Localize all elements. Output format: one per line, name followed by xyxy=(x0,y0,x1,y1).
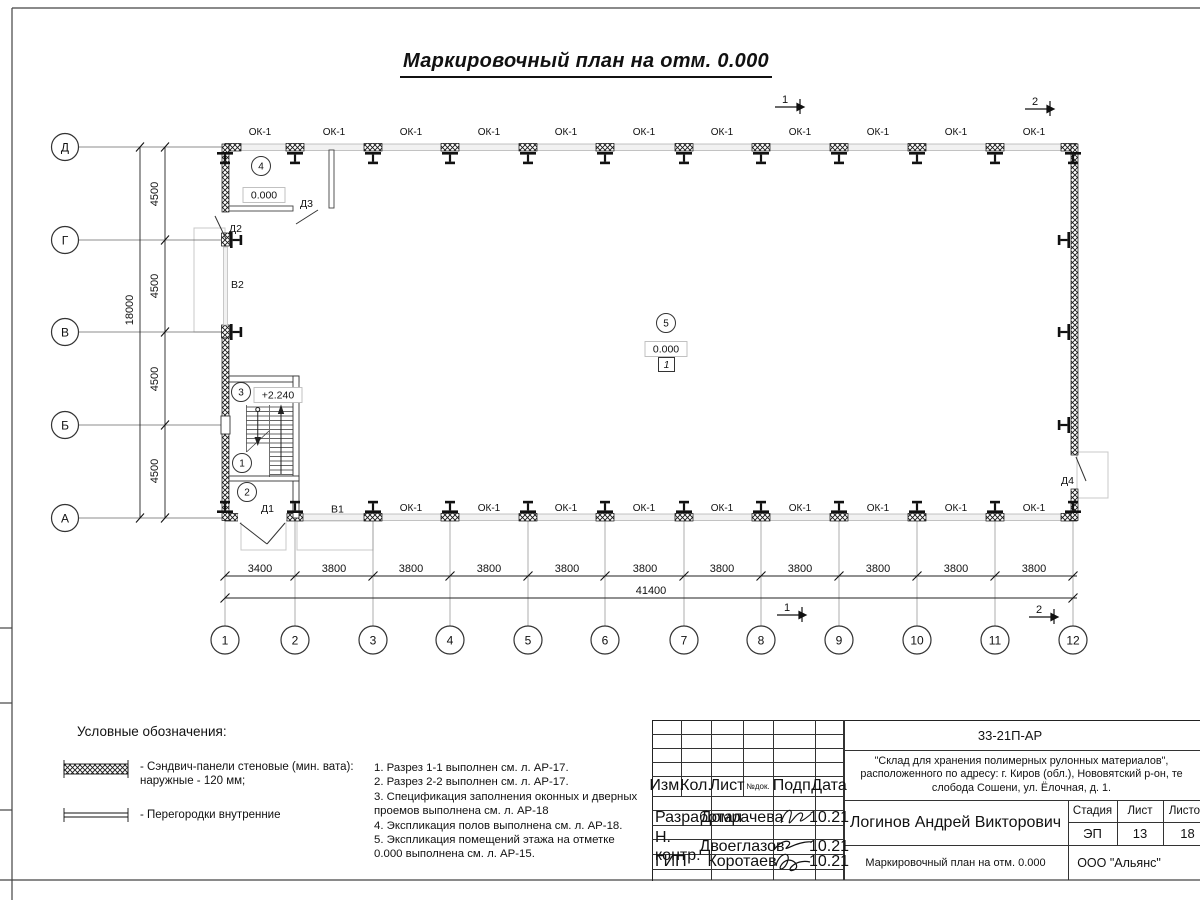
window-label: ОК-1 xyxy=(789,503,812,514)
tb-sheet-value: 13 xyxy=(1117,822,1163,845)
dim-bay: 3800 xyxy=(555,563,579,575)
window-label: ОК-1 xyxy=(789,127,812,138)
axis-letter: Г xyxy=(62,234,69,248)
sandwich-walls xyxy=(222,144,1079,522)
axis-number: 1 xyxy=(222,634,229,648)
section-label: 2 xyxy=(1036,604,1042,616)
axis-number: 3 xyxy=(370,634,377,648)
window-label: ОК-1 xyxy=(323,127,346,138)
tb-date: 10.21 xyxy=(815,810,843,825)
tb-col-izm: Изм. xyxy=(652,776,681,796)
tb-col-data: Дата xyxy=(815,776,843,796)
dim-bay: 3400 xyxy=(248,563,272,575)
tb-stage-value: ЭП xyxy=(1068,822,1117,845)
window-label: ОК-1 xyxy=(478,503,501,514)
axis-number: 6 xyxy=(602,634,609,648)
room-number: 1 xyxy=(239,459,245,470)
legend-sandwich-symbol xyxy=(60,760,136,778)
tb-line xyxy=(843,750,1200,751)
tb-company: ООО "Альянс" xyxy=(1068,845,1200,880)
door-label: Д4 xyxy=(1061,475,1074,487)
tb-col-podp: Подп. xyxy=(773,776,815,796)
tb-doc-code: 33-21П-АР xyxy=(843,720,1177,750)
room-number: 4 xyxy=(258,162,264,173)
elevation-value: 0.000 xyxy=(653,344,679,356)
tb-author: Логинов Андрей Викторович xyxy=(843,800,1068,845)
dim-row: 4500 xyxy=(149,459,161,483)
dim-bay: 3800 xyxy=(633,563,657,575)
dim-bay: 3800 xyxy=(399,563,423,575)
window-label: ОК-1 xyxy=(555,127,578,138)
axis-number: 12 xyxy=(1066,634,1080,648)
legend-item-partition: - Перегородки внутренние xyxy=(140,808,281,822)
tb-col-ndoc: №док. xyxy=(743,776,773,796)
dimension-ticks xyxy=(136,143,1078,603)
window-label: ОК-1 xyxy=(1023,503,1046,514)
drawing-title: Маркировочный план на отм. 0.000 xyxy=(400,50,772,78)
tb-col-list: Лист xyxy=(711,776,743,796)
dim-bay: 3800 xyxy=(710,563,734,575)
dim-bay: 3800 xyxy=(322,563,346,575)
door-label: Д1 xyxy=(261,503,274,515)
window-label: ОК-1 xyxy=(711,503,734,514)
legend-item-sandwich: - Сэндвич-панели стеновые (мин. вата): н… xyxy=(140,760,354,788)
axis-number: 9 xyxy=(836,634,843,648)
tb-role: ГИП xyxy=(655,854,710,869)
window-label: ОК-1 xyxy=(945,503,968,514)
note-line: 3. Спецификация заполнения оконных и две… xyxy=(374,790,654,804)
gate-label: В2 xyxy=(231,279,244,291)
dim-bay: 3800 xyxy=(1022,563,1046,575)
window-label: ОК-1 xyxy=(478,127,501,138)
columns xyxy=(217,152,1081,513)
signature-2 xyxy=(768,836,820,876)
axis-number: 5 xyxy=(525,634,532,648)
elevation-value: +2.240 xyxy=(262,390,295,402)
legend-partition-symbol xyxy=(60,806,136,824)
section-markers xyxy=(775,99,1058,624)
tb-sheet-label: Лист xyxy=(1117,800,1163,822)
axis-number: 4 xyxy=(447,634,454,648)
dim-bay: 3800 xyxy=(944,563,968,575)
gate-label: В1 xyxy=(331,504,344,516)
room-number: 5 xyxy=(663,319,669,330)
doors xyxy=(215,210,1086,544)
window-label: ОК-1 xyxy=(400,503,423,514)
window-label: ОК-1 xyxy=(555,503,578,514)
note-line: 1. Разрез 1-1 выполнен см. л. АР-17. xyxy=(374,761,654,775)
window-label: ОК-1 xyxy=(945,127,968,138)
tb-project: "Склад для хранения полимерных рулонных … xyxy=(843,752,1200,798)
dim-bay: 3800 xyxy=(477,563,501,575)
tb-name: Коротаев xyxy=(711,854,773,869)
window-walls xyxy=(225,144,1077,521)
tb-stage-label: Стадия xyxy=(1068,800,1117,822)
dim-total-v: 18000 xyxy=(124,295,136,326)
axis-letter: В xyxy=(61,326,69,340)
tb-sheets-value: 18 xyxy=(1163,822,1200,845)
tb-name: Домрачева xyxy=(711,810,773,825)
window-label: ОК-1 xyxy=(711,127,734,138)
room-number: 3 xyxy=(238,388,244,399)
window-label: ОК-1 xyxy=(633,503,656,514)
section-label: 2 xyxy=(1032,96,1038,108)
window-label: ОК-1 xyxy=(867,503,890,514)
axis-number: 2 xyxy=(292,634,299,648)
axis-number: 11 xyxy=(989,634,1002,648)
note-line: 5. Экспликация помещений этажа на отметк… xyxy=(374,833,654,847)
axis-letter: Б xyxy=(61,419,69,433)
window-label: ОК-1 xyxy=(867,127,890,138)
axis-letter: Д xyxy=(61,141,69,155)
room-number: 2 xyxy=(244,488,250,499)
elevation-marks xyxy=(243,188,687,403)
elevation-value: 0.000 xyxy=(251,190,277,202)
door-label: Д3 xyxy=(300,198,313,210)
note-line: 4. Экспликация полов выполнена см. л. АР… xyxy=(374,819,654,833)
note-line: 0.000 выполнена см. л. АР-15. xyxy=(374,847,654,861)
dim-row: 4500 xyxy=(149,182,161,206)
door-label: Д2 xyxy=(229,223,242,235)
axis-letter: А xyxy=(61,512,69,526)
tb-drawing-name: Маркировочный план на отм. 0.000 xyxy=(843,845,1068,880)
window-label: ОК-1 xyxy=(400,127,423,138)
legend-heading: Условные обозначения: xyxy=(77,724,227,739)
dimension-lines xyxy=(140,147,1077,598)
tb-col-kol: Кол. xyxy=(681,776,711,796)
window-label: ОК-1 xyxy=(249,127,272,138)
dim-bay: 3800 xyxy=(866,563,890,575)
axis-number: 8 xyxy=(758,634,765,648)
dim-bay: 3800 xyxy=(788,563,812,575)
section-label: 1 xyxy=(784,602,790,614)
axis-number: 10 xyxy=(910,634,924,648)
axis-number: 7 xyxy=(681,634,688,648)
window-label: ОК-1 xyxy=(633,127,656,138)
note-line: 2. Разрез 2-2 выполнен см. л. АР-17. xyxy=(374,775,654,789)
note-line: проемов выполнена см. л. АР-18 xyxy=(374,804,654,818)
tb-sheets-label: Листов xyxy=(1163,800,1200,822)
dim-total: 41400 xyxy=(636,585,667,597)
notes-block: 1. Разрез 1-1 выполнен см. л. АР-17. 2. … xyxy=(374,761,654,862)
floor-type-number: 1 xyxy=(664,359,670,371)
dim-row: 4500 xyxy=(149,367,161,391)
dim-row: 4500 xyxy=(149,274,161,298)
axis-bubbles-numbers xyxy=(211,626,1087,654)
drawing-sheet: { "title": "Маркировочный план на отм. 0… xyxy=(0,0,1200,900)
porch-outlines xyxy=(194,228,1108,550)
window-label: ОК-1 xyxy=(1023,127,1046,138)
signature-1 xyxy=(777,805,815,829)
gate-wall-v2 xyxy=(224,247,228,325)
section-label: 1 xyxy=(782,94,788,106)
